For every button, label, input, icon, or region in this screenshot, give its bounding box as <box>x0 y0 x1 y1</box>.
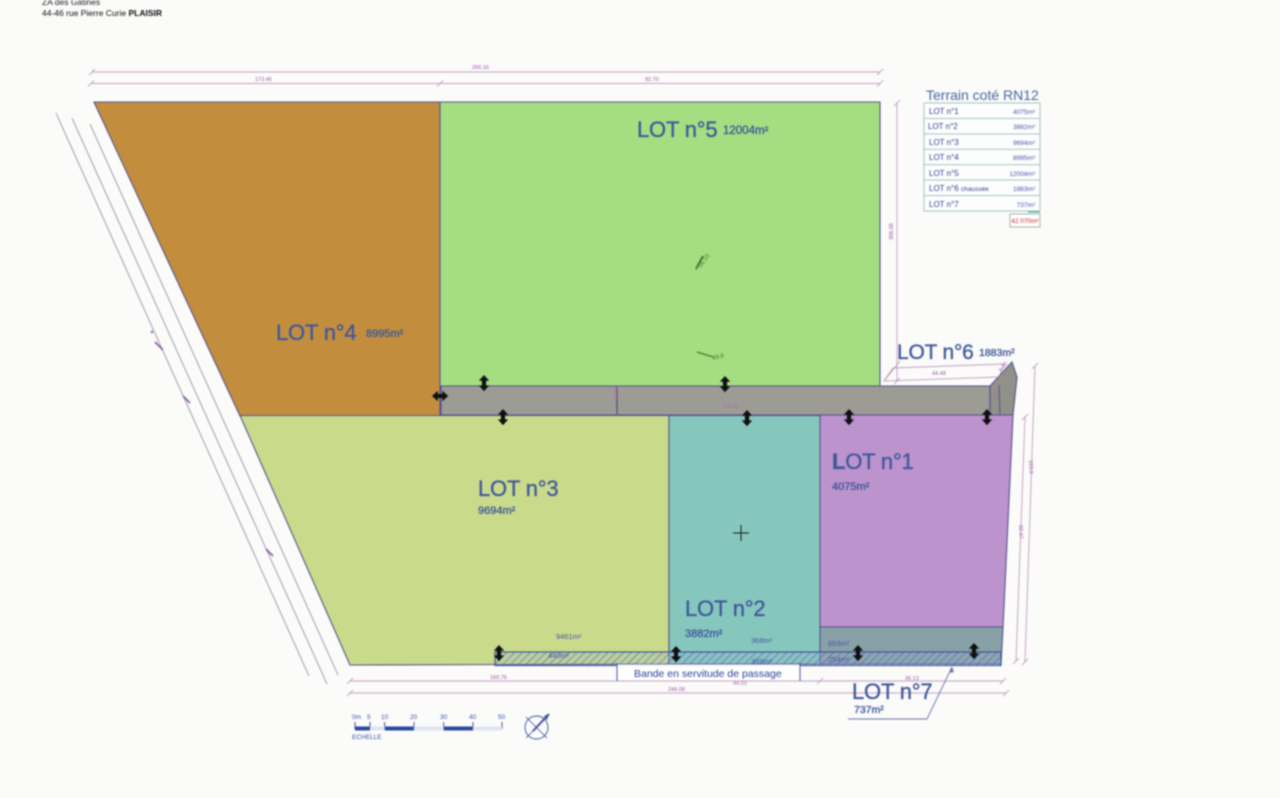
svg-text:3882m²: 3882m² <box>685 628 723 640</box>
svg-text:Bande en servitude de passage: Bande en servitude de passage <box>634 668 782 680</box>
svg-text:LOT n°2: LOT n°2 <box>928 122 958 131</box>
svg-text:12004m²: 12004m² <box>723 125 769 137</box>
svg-text:9694m²: 9694m² <box>1013 140 1036 147</box>
svg-text:10: 10 <box>381 714 389 721</box>
svg-text:4075m²: 4075m² <box>1013 109 1036 116</box>
svg-text:92.47: 92.47 <box>1017 525 1023 539</box>
svg-text:737m²: 737m² <box>854 704 884 716</box>
svg-text:4075m²: 4075m² <box>832 481 870 493</box>
svg-text:160.76: 160.76 <box>490 675 507 681</box>
svg-text:1883m²: 1883m² <box>979 347 1015 359</box>
svg-text:103.9: 103.9 <box>1027 460 1033 474</box>
svg-text:440m²: 440m² <box>548 651 570 660</box>
svg-text:Terrain coté RN12: Terrain coté RN12 <box>926 87 1039 103</box>
svg-text:224.32: 224.32 <box>722 404 739 410</box>
svg-text:44.93: 44.93 <box>733 681 747 687</box>
svg-text:1883m²: 1883m² <box>1013 186 1036 193</box>
svg-text:LOT n°6 chaussée: LOT n°6 chaussée <box>929 184 989 193</box>
svg-text:44.48: 44.48 <box>932 371 946 377</box>
svg-text:8995m²: 8995m² <box>366 328 404 340</box>
svg-text:254m²: 254m² <box>828 655 850 664</box>
svg-text:20: 20 <box>410 714 418 721</box>
svg-text:266.16: 266.16 <box>472 65 489 71</box>
svg-text:9461m²: 9461m² <box>556 632 582 641</box>
svg-text:246.08: 246.08 <box>668 687 685 693</box>
svg-text:359m²: 359m² <box>751 657 773 666</box>
svg-text:0m: 0m <box>352 714 361 721</box>
svg-text:92.70: 92.70 <box>645 77 659 83</box>
svg-text:306.08: 306.08 <box>889 223 895 240</box>
svg-text:737m²: 737m² <box>1017 202 1036 209</box>
svg-text:LOT n°4: LOT n°4 <box>929 153 959 162</box>
svg-text:9694m²: 9694m² <box>478 505 516 517</box>
svg-text:LOT n°1: LOT n°1 <box>929 107 959 116</box>
svg-text:ZA des Gatines: ZA des Gatines <box>42 0 100 7</box>
svg-text:40: 40 <box>469 714 477 721</box>
svg-text:LOT n°4: LOT n°4 <box>276 320 356 345</box>
svg-text:12004m²: 12004m² <box>1009 171 1035 178</box>
svg-text:653m²: 653m² <box>828 639 850 648</box>
svg-text:8995m²: 8995m² <box>1013 155 1036 162</box>
svg-text:44-46 rue Pierre Curie PLAISIR: 44-46 rue Pierre Curie PLAISIR <box>42 8 162 18</box>
svg-text:ECHELLE: ECHELLE <box>352 734 382 741</box>
svg-text:LOT n°5: LOT n°5 <box>929 169 959 178</box>
svg-text:LOT n°3: LOT n°3 <box>929 138 959 147</box>
svg-text:24.32: 24.32 <box>614 386 620 400</box>
svg-text:30: 30 <box>440 714 448 721</box>
svg-text:5: 5 <box>367 714 371 721</box>
svg-text:LOT n°3: LOT n°3 <box>478 476 558 501</box>
svg-text:LOT n°7: LOT n°7 <box>852 679 932 704</box>
svg-text:LOT n°2: LOT n°2 <box>685 596 765 621</box>
svg-text:173.46: 173.46 <box>255 77 272 83</box>
svg-text:LOT n°6: LOT n°6 <box>897 341 974 364</box>
svg-text:368m²: 368m² <box>751 636 773 645</box>
svg-text:42 070m²: 42 070m² <box>1011 218 1039 225</box>
svg-text:50: 50 <box>498 714 506 721</box>
svg-text:LOT n°7: LOT n°7 <box>929 200 959 209</box>
svg-text:3882m²: 3882m² <box>1013 124 1036 131</box>
svg-text:LOT n°1: LOT n°1 <box>832 449 914 474</box>
svg-text:LOT n°5: LOT n°5 <box>637 117 717 142</box>
